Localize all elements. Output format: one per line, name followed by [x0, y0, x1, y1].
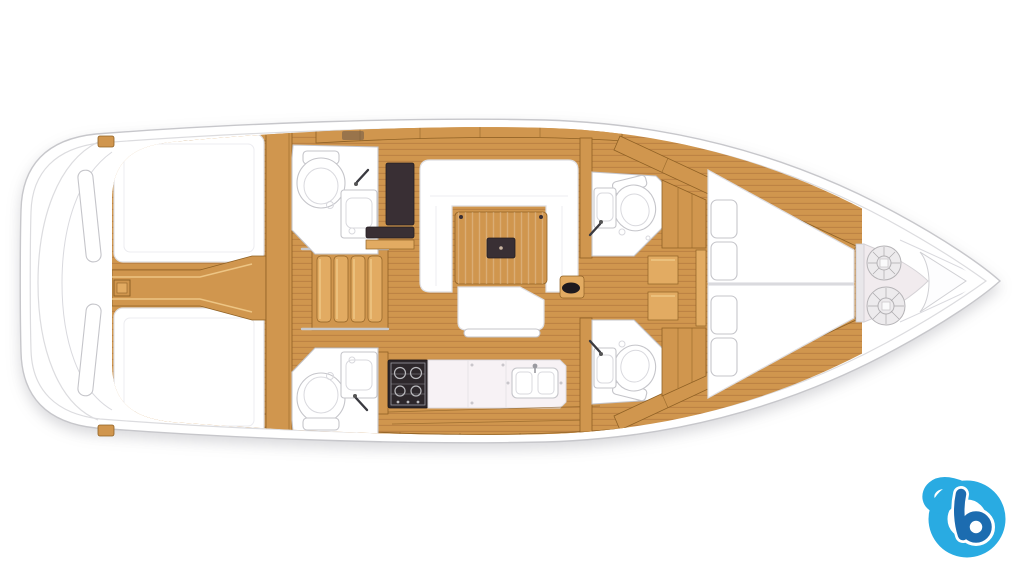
boat-floorplan-image: [0, 0, 1024, 576]
rope-coil-2: [867, 287, 905, 325]
saloon-bench: [458, 287, 544, 337]
head-port-mid: [292, 145, 378, 254]
deck-hatch-small: [342, 131, 364, 140]
aft-cabin-port: [114, 134, 264, 262]
stern-wood-wedge-port: [98, 136, 114, 147]
wood-shelf-under: [366, 240, 414, 249]
wardrobe-tall: [386, 163, 414, 225]
companionway-steps: [302, 249, 388, 330]
stern-wood-wedge-starboard: [98, 425, 114, 436]
stove: [388, 360, 428, 408]
bulkhead-port: [580, 138, 592, 258]
bench-cushion: [458, 287, 544, 330]
bench-base: [464, 329, 540, 337]
floorplan-svg: [0, 0, 1024, 576]
table-bolt-1: [459, 215, 463, 219]
coil-hub: [880, 259, 888, 267]
fore-door-sill: [696, 250, 706, 326]
brand-logo: [928, 483, 996, 548]
toilet: [297, 373, 345, 431]
toilet: [297, 151, 345, 209]
locker-band: [266, 124, 292, 448]
interior: [110, 120, 988, 452]
bulkhead-starboard: [580, 318, 592, 432]
rope-coil-1: [867, 246, 901, 280]
head-starboard-mid: [292, 348, 378, 434]
berth-port: [114, 134, 264, 262]
wardrobe-shelf: [366, 227, 414, 238]
table-insert-dot: [499, 246, 503, 250]
aft-saloon-pedestal: [560, 276, 584, 298]
locker-bulkhead: [856, 244, 864, 322]
galley-sink: [507, 364, 563, 398]
black-basin: [562, 283, 580, 294]
table-bolt-2: [539, 215, 543, 219]
keel-hatch-inner: [117, 283, 127, 293]
saloon-table: [455, 212, 547, 284]
coil-hub: [882, 302, 890, 310]
